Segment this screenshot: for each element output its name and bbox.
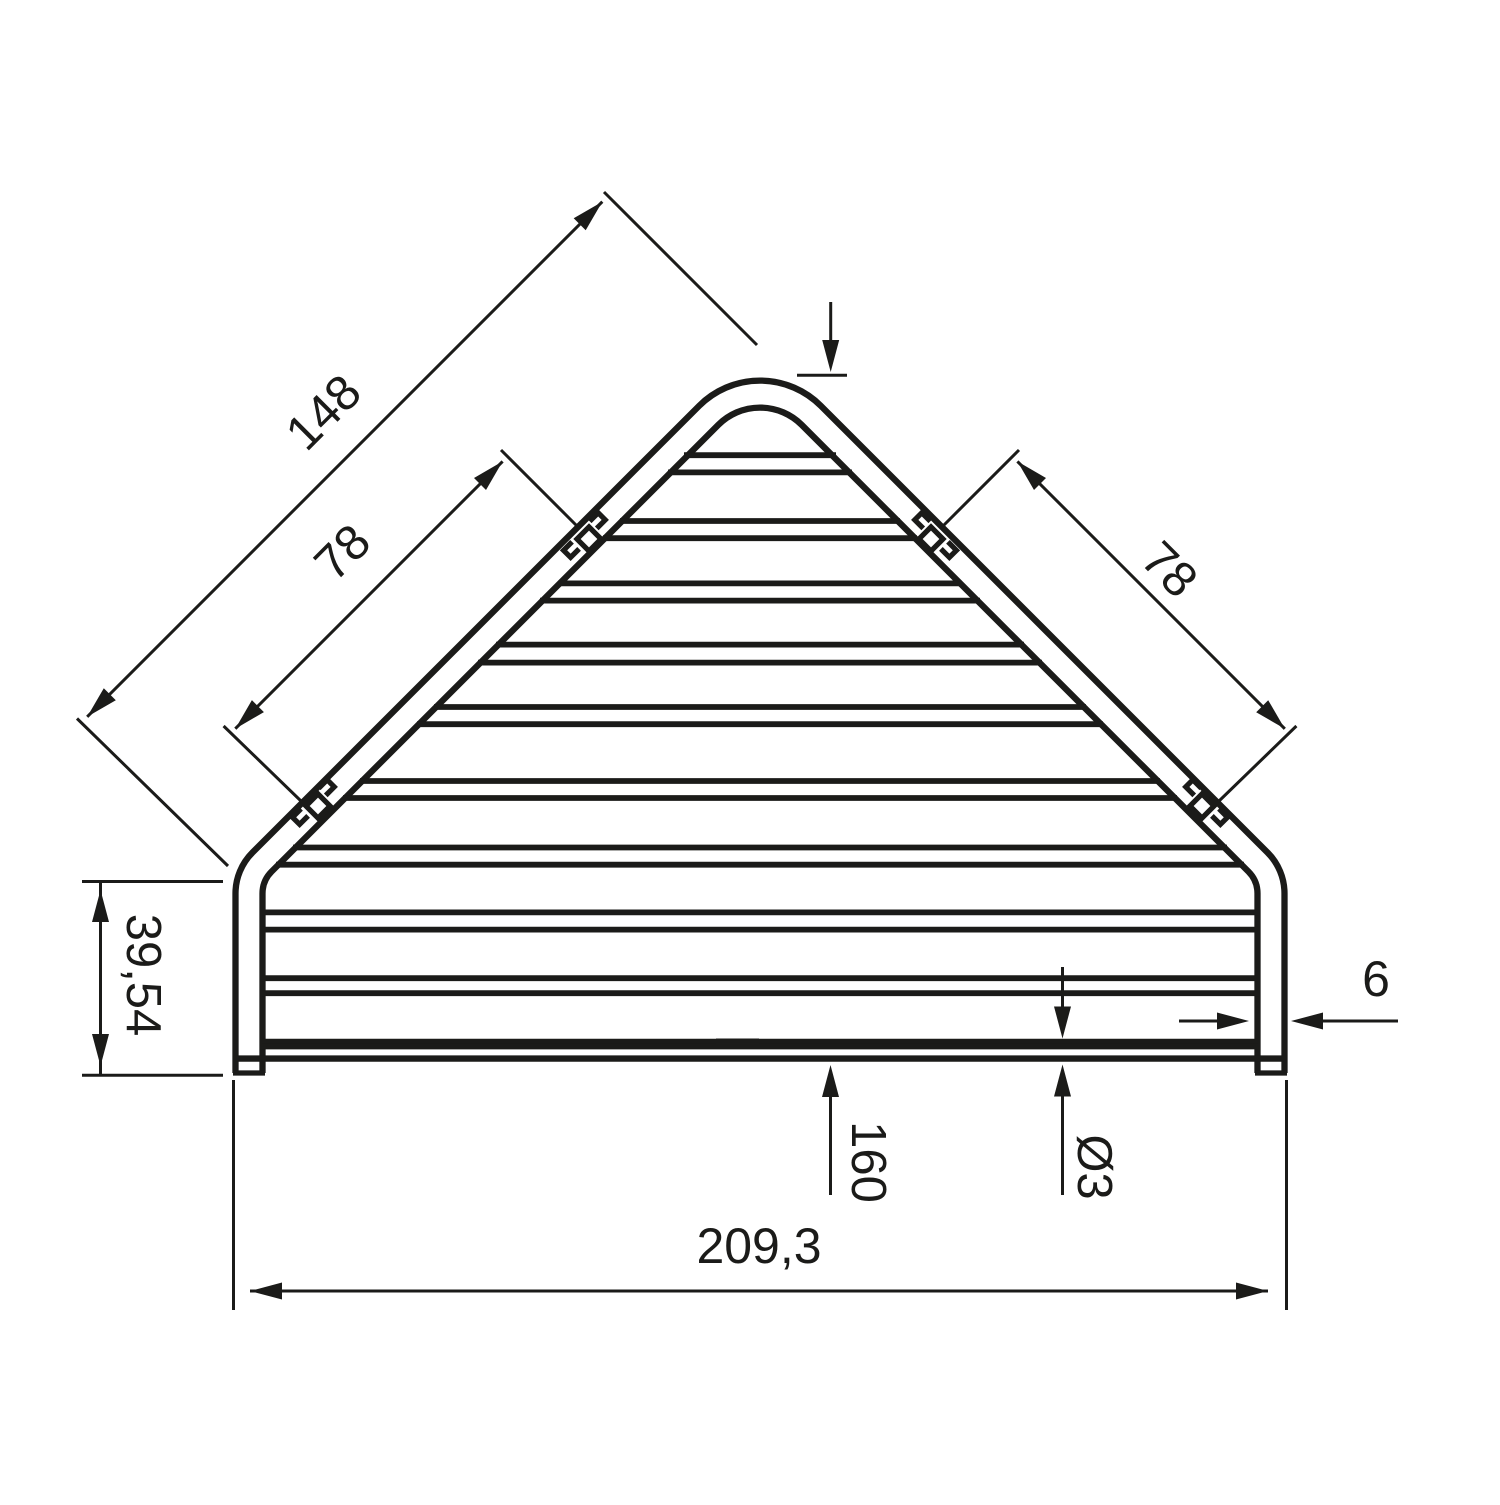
svg-text:39,54: 39,54 bbox=[116, 914, 170, 1037]
svg-text:Ø3: Ø3 bbox=[1067, 1134, 1121, 1199]
svg-text:209,3: 209,3 bbox=[696, 1218, 821, 1274]
svg-text:160: 160 bbox=[841, 1121, 895, 1203]
svg-text:78: 78 bbox=[1131, 531, 1208, 608]
svg-text:78: 78 bbox=[304, 514, 381, 591]
svg-text:6: 6 bbox=[1362, 951, 1390, 1007]
